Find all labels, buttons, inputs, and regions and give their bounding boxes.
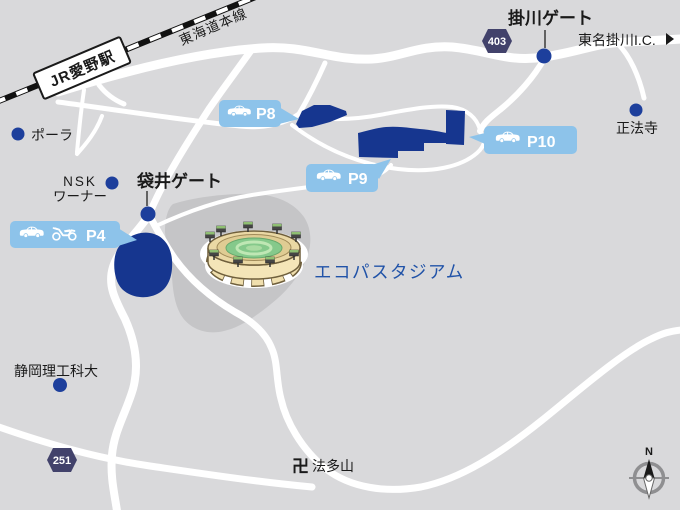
route-badge-251: 251 [47,448,77,472]
stadium-label: エコパスタジアム [314,262,465,282]
kakegawa-gate-label: 掛川ゲート [508,8,593,28]
callout-p9-label: P9 [348,171,368,188]
route-badge-403: 403 [482,29,512,53]
pola-dot [12,128,25,141]
university-label: 静岡理工科大 [14,363,98,379]
compass-north-label: N [645,446,653,458]
university-dot [53,378,67,392]
temple-manji-icon: 卍 [292,457,309,476]
kakegawa-gate-dot [537,49,552,64]
nsk-label-line2: ワーナー [53,189,107,204]
callout-p4-label: P4 [86,228,106,245]
nsk-dot [106,177,119,190]
callout-p8-label: P8 [256,106,276,123]
hattasan-label: 法多山 [312,458,354,474]
route-badge-403-label: 403 [488,36,506,48]
parking-area-p10 [446,110,465,145]
callout-p10: P10 [469,126,577,154]
shoboji-dot [630,104,643,117]
fukuroi-gate-label: 袋井ゲート [136,171,222,191]
route-badge-251-label: 251 [53,455,71,467]
nsk-label-line1: NSK [63,174,97,189]
callout-p10-label: P10 [527,134,556,151]
shoboji-label: 正法寺 [616,120,658,136]
map-canvas: 東海道本線 JR愛野駅 [0,0,680,510]
access-map: 東海道本線 JR愛野駅 [0,0,680,510]
tomei-ic-label: 東名掛川I.C. [578,32,656,48]
pola-label: ポーラ [31,127,73,143]
fukuroi-gate-dot [141,207,156,222]
callout-p4: P4 [10,221,137,248]
